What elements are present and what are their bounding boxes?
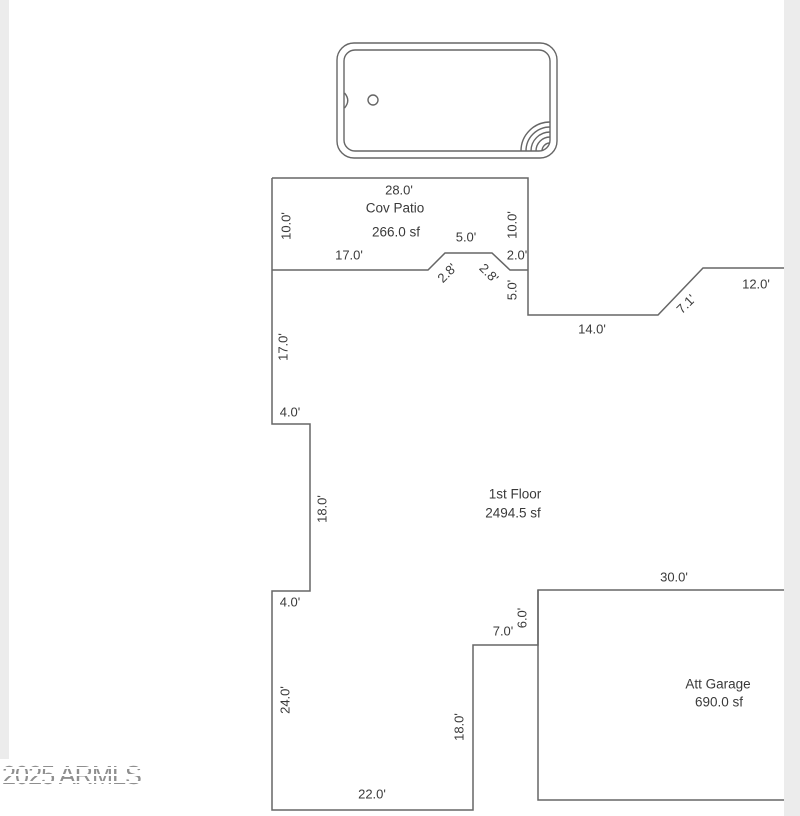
first-floor-label: 1st Floor: [489, 487, 542, 501]
dim-garage-left: 6.0': [516, 608, 529, 629]
pool-inner-wall: [344, 50, 550, 151]
dim-left-upper: 17.0': [277, 333, 290, 361]
dim-right-bottom: 14.0': [578, 323, 606, 336]
pool-drain-icon: [368, 95, 378, 105]
dim-right-top: 12.0': [742, 278, 770, 291]
armls-watermark: 2025 ARMLS: [2, 762, 141, 788]
garage-outline: [538, 590, 784, 800]
dim-bump-top: 5.0': [456, 231, 477, 244]
patio-label: Cov Patio: [366, 201, 425, 215]
pool-shape: [337, 43, 557, 158]
dim-garage-top: 30.0': [660, 571, 688, 584]
dim-patio-right: 10.0': [506, 211, 519, 239]
dim-left-jog-upper: 4.0': [280, 406, 301, 419]
pool-outer-wall: [337, 43, 557, 158]
dim-bottom: 22.0': [358, 788, 386, 801]
dim-notch-top: 7.0': [493, 625, 514, 638]
dim-right-step: 2.0': [507, 249, 528, 262]
first-floor-right-wall: [528, 268, 784, 315]
pool-skimmer-icon: [345, 93, 348, 108]
dim-notch-right: 18.0': [453, 713, 466, 741]
dim-patio-left: 10.0': [280, 212, 293, 240]
first-floor-sqft: 2494.5 sf: [485, 506, 541, 520]
garage-label: Att Garage: [685, 677, 750, 691]
floorplan-page: Cov Patio 266.0 sf 1st Floor 2494.5 sf A…: [0, 0, 800, 816]
dim-left-lower: 24.0': [279, 686, 292, 714]
dim-patio-inner: 17.0': [335, 249, 363, 262]
floor-plan-drawing: [0, 0, 800, 816]
dim-left-mid: 18.0': [316, 495, 329, 523]
pool-steps-icon: [521, 122, 550, 151]
patio-sqft: 266.0 sf: [372, 225, 420, 239]
dim-patio-top: 28.0': [385, 184, 413, 197]
dim-left-jog-lower: 4.0': [280, 596, 301, 609]
dim-right-down: 5.0': [506, 280, 519, 301]
garage-sqft: 690.0 sf: [695, 695, 743, 709]
